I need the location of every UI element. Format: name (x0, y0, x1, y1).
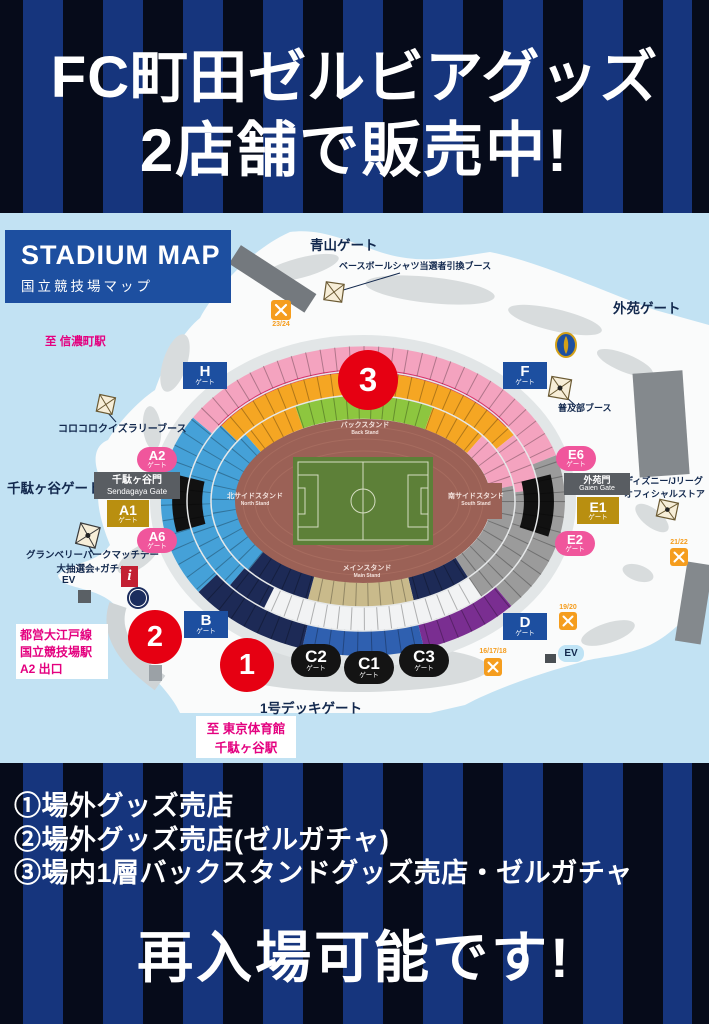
poster-title-line2: 2店舗で販売中! (0, 102, 709, 189)
ev-right-label: EV (558, 645, 584, 662)
main-stand-label: メインスタンドMain Stand (343, 565, 392, 579)
gate-e2: E2ゲート (555, 531, 595, 556)
stadium-map: STADIUM MAP 国立競技場マップ 青山ゲート 外苑ゲート 千駄ヶ谷ゲート… (0, 213, 709, 763)
shinanomachi-station-label: 至 信濃町駅 (45, 333, 106, 349)
baseball-shirt-booth-label: ベースボールシャツ当選者引換ブース (339, 259, 491, 272)
back-stand-label: バックスタンドBack Stand (341, 422, 390, 436)
map-title-panel: STADIUM MAP 国立競技場マップ (5, 230, 231, 303)
disney-store-label: ディズニー/Jリーグ オフィシャルストア (624, 474, 709, 500)
gaien-mon-gate: 外苑門 Gaien Gate (564, 473, 630, 495)
fukyubu-booth-label: 普及部ブース (558, 401, 612, 414)
gate-e6: E6ゲート (556, 446, 596, 471)
shop-marker-1: 1 (220, 638, 274, 692)
gate-c2: C2ゲート (291, 644, 341, 677)
korokoro-quiz-booth-label: コロコロクイズラリーブース (58, 420, 187, 435)
food-stall-16-18-label: 16/17/18 (472, 648, 514, 655)
shop-marker-2: 2 (128, 610, 182, 664)
gaien-gate-label: 外苑ゲート (613, 297, 681, 317)
oedo-line-label: 都営大江戸線 国立競技場駅 A2 出口 (16, 624, 108, 679)
gate-c3: C3ゲート (399, 644, 449, 677)
deck-gate-label: 1号デッキゲート (260, 697, 362, 717)
food-stall-19-20-label: 19/20 (553, 604, 583, 611)
gate-c1: C1ゲート (344, 651, 394, 684)
shop-marker-3: 3 (338, 350, 398, 410)
legend-item-1: ①場外グッズ売店 (14, 790, 633, 824)
aoyama-gate-label: 青山ゲート (310, 234, 378, 254)
sendagaya-mon-gate: 千駄ヶ谷門 Sendagaya Gate (94, 472, 180, 499)
food-stall-21-22-label: 21/22 (662, 539, 696, 546)
club-emblem-icon (556, 333, 576, 357)
gate-b: Bゲート (184, 611, 228, 638)
legend-item-2: ②場外グッズ売店(ゼルガチャ) (14, 824, 633, 858)
gate-a1: A1ゲート (107, 500, 149, 527)
top-title-band: FC町田ゼルビアグッズ 2店舗で販売中! (0, 0, 709, 213)
information-icon: i (121, 566, 138, 587)
map-title: STADIUM MAP (21, 240, 231, 271)
map-subtitle: 国立競技場マップ (21, 275, 231, 295)
shop-legend: ①場外グッズ売店 ②場外グッズ売店(ゼルガチャ) ③場内1層バックスタンドグッズ… (14, 790, 633, 891)
gate-d: Dゲート (503, 613, 547, 640)
poster: FC町田ゼルビアグッズ 2店舗で販売中! (0, 0, 709, 1024)
gate-h: Hゲート (183, 362, 227, 389)
food-stall-23-24-label: 23/24 (266, 321, 296, 328)
north-stand-label: 北サイドスタンドNorth Stand (227, 493, 283, 507)
gate-a6: A6ゲート (137, 528, 177, 553)
tokyo-gym-station-label: 至 東京体育館 千駄ヶ谷駅 (196, 716, 296, 758)
gate-e1: E1ゲート (577, 497, 619, 524)
football-pitch (293, 457, 433, 545)
legend-item-3: ③場内1層バックスタンドグッズ売店・ゼルガチャ (14, 857, 633, 891)
ev-left-label: EV (62, 575, 75, 586)
gate-a2: A2ゲート (137, 447, 177, 472)
reentry-notice: 再入場可能です! (0, 913, 709, 994)
bottom-legend-band: ①場外グッズ売店 ②場外グッズ売店(ゼルガチャ) ③場内1層バックスタンドグッズ… (0, 763, 709, 1024)
sendagaya-gate-label: 千駄ヶ谷ゲート (7, 477, 102, 497)
gate-f: Fゲート (503, 362, 547, 389)
south-stand-label: 南サイドスタンドSouth Stand (448, 493, 504, 507)
oedo-line-badge-icon (127, 587, 149, 609)
